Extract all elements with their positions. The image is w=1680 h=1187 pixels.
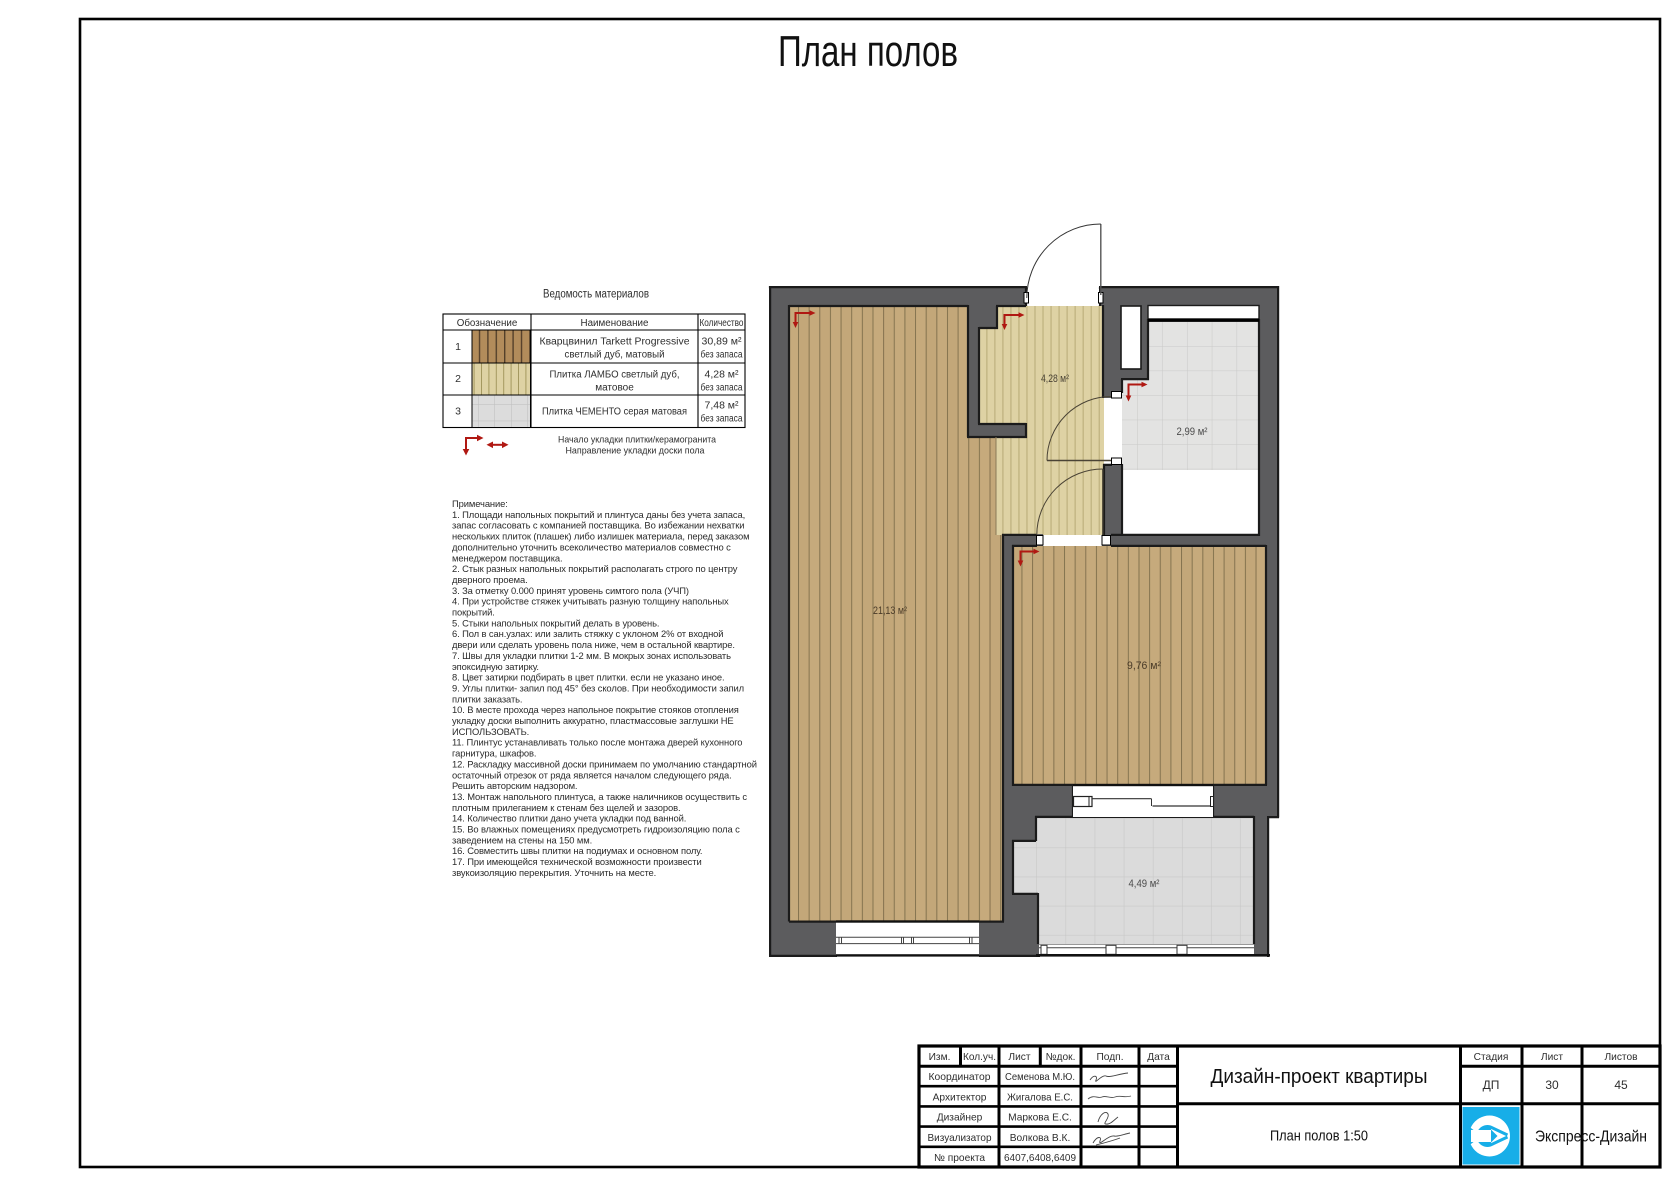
svg-text:4,49 м²: 4,49 м² bbox=[1129, 878, 1160, 890]
svg-text:1. Площади напольных покрытий: 1. Площади напольных покрытий и плинтуса… bbox=[452, 509, 745, 520]
svg-text:15. Во влажных помещениях пред: 15. Во влажных помещениях предусмотреть … bbox=[452, 824, 740, 835]
svg-text:светлый дуб, матовый: светлый дуб, матовый bbox=[565, 349, 665, 361]
svg-text:без запаса: без запаса bbox=[701, 382, 743, 394]
svg-text:2: 2 bbox=[455, 373, 461, 385]
svg-text:45: 45 bbox=[1614, 1078, 1628, 1092]
svg-text:№док.: №док. bbox=[1046, 1052, 1076, 1063]
svg-text:плотным прилеганием к стенам б: плотным прилеганием к стенам без щелей и… bbox=[452, 802, 680, 813]
svg-text:Изм.: Изм. bbox=[929, 1052, 951, 1063]
svg-text:Обозначение: Обозначение bbox=[457, 318, 518, 329]
svg-text:остаточный отрезок от ряда явл: остаточный отрезок от ряда является нача… bbox=[452, 769, 732, 780]
svg-text:Подп.: Подп. bbox=[1096, 1052, 1123, 1063]
svg-text:Координатор: Координатор bbox=[929, 1072, 991, 1083]
svg-text:Кол.уч.: Кол.уч. bbox=[963, 1052, 996, 1063]
svg-text:8. Цвет затирки подбирать в цв: 8. Цвет затирки подбирать в цвет плитки.… bbox=[452, 672, 725, 683]
svg-text:13. Монтаж напольного плинтуса: 13. Монтаж напольного плинтуса, а также … bbox=[452, 791, 747, 802]
svg-text:Семенова М.Ю.: Семенова М.Ю. bbox=[1005, 1072, 1075, 1083]
svg-text:запас согласовать с компанией: запас согласовать с компанией поставщика… bbox=[452, 520, 744, 531]
svg-text:ДП: ДП bbox=[1483, 1078, 1500, 1092]
svg-text:30: 30 bbox=[1545, 1078, 1559, 1092]
svg-text:Листов: Листов bbox=[1604, 1052, 1637, 1063]
svg-text:Волкова В.К.: Волкова В.К. bbox=[1010, 1133, 1071, 1144]
svg-text:16. Совместить швы плитки на п: 16. Совместить швы плитки на подиумах и … bbox=[452, 845, 702, 856]
svg-text:17. При имеющейся технической: 17. При имеющейся технической возможност… bbox=[452, 856, 702, 867]
svg-text:Маркова Е.С.: Маркова Е.С. bbox=[1008, 1113, 1072, 1124]
svg-text:4,28 м²: 4,28 м² bbox=[705, 370, 740, 381]
svg-text:Дизайнер: Дизайнер bbox=[937, 1113, 983, 1124]
svg-text:плитки заказать.: плитки заказать. bbox=[452, 693, 522, 704]
svg-text:Жигалова Е.С.: Жигалова Е.С. bbox=[1007, 1093, 1073, 1104]
svg-text:14. Количество плитки дано уче: 14. Количество плитки дано учета укладки… bbox=[452, 813, 686, 824]
svg-text:гарнитура, шкафов.: гарнитура, шкафов. bbox=[452, 748, 536, 759]
svg-text:№ проекта: № проекта bbox=[934, 1153, 985, 1164]
svg-text:без запаса: без запаса bbox=[701, 349, 743, 361]
svg-text:10. В месте прохода через напо: 10. В месте прохода через напольное покр… bbox=[452, 704, 739, 715]
svg-text:Плитка ЛАМБО светлый дуб,: Плитка ЛАМБО светлый дуб, bbox=[550, 369, 680, 381]
svg-text:9,76 м²: 9,76 м² bbox=[1127, 660, 1161, 672]
svg-text:7,48 м²: 7,48 м² bbox=[705, 401, 740, 412]
svg-text:Плитка ЧЕМЕНТО серая матовая: Плитка ЧЕМЕНТО серая матовая bbox=[542, 407, 687, 418]
svg-text:Дата: Дата bbox=[1147, 1052, 1170, 1063]
svg-text:Дизайн-проект квартиры: Дизайн-проект квартиры bbox=[1211, 1066, 1428, 1088]
svg-text:План полов: План полов bbox=[778, 27, 958, 76]
svg-text:Стадия: Стадия bbox=[1474, 1052, 1509, 1063]
svg-text:9. Углы плитки- запил под 45°: 9. Углы плитки- запил под 45° без сколов… bbox=[452, 682, 744, 693]
svg-text:Начало укладки плитки/керамогр: Начало укладки плитки/керамогранита bbox=[558, 435, 717, 445]
svg-text:звукоизоляцию перекрытия. Уточ: звукоизоляцию перекрытия. Уточнить на ме… bbox=[452, 867, 656, 878]
svg-text:1: 1 bbox=[455, 341, 461, 353]
svg-text:12. Раскладку массивной доски: 12. Раскладку массивной доски принимаем … bbox=[452, 758, 757, 769]
svg-text:Экспресс-Дизайн: Экспресс-Дизайн bbox=[1535, 1129, 1647, 1146]
svg-text:3. За отметку 0.000 принят ур: 3. За отметку 0.000 принят уровень симто… bbox=[452, 585, 689, 596]
svg-text:3: 3 bbox=[455, 406, 461, 418]
svg-text:4. При устройстве стяжек учиты: 4. При устройстве стяжек учитывать разну… bbox=[452, 596, 729, 607]
svg-text:Архитектор: Архитектор bbox=[933, 1093, 987, 1104]
svg-text:нескольких плиток (плашек) либ: нескольких плиток (плашек) либо излишек … bbox=[452, 531, 749, 542]
svg-text:2,99 м²: 2,99 м² bbox=[1177, 426, 1208, 438]
svg-text:Ведомость материалов: Ведомость материалов bbox=[543, 289, 649, 301]
svg-text:4,28 м²: 4,28 м² bbox=[1041, 373, 1069, 385]
svg-text:Решить авторским надзором.: Решить авторским надзором. bbox=[452, 780, 577, 791]
svg-text:Лист: Лист bbox=[1541, 1052, 1563, 1063]
svg-text:Примечание:: Примечание: bbox=[452, 498, 508, 509]
svg-text:заведением на стены на 150 мм.: заведением на стены на 150 мм. bbox=[452, 834, 592, 845]
svg-text:двери или сделать уровень пола: двери или сделать уровень пола ниже, чем… bbox=[452, 639, 735, 650]
svg-text:Кварцвинил Tarkett Progressive: Кварцвинил Tarkett Progressive bbox=[540, 337, 690, 348]
svg-text:6407,6408,6409: 6407,6408,6409 bbox=[1004, 1153, 1076, 1164]
svg-text:Направление укладки доски пола: Направление укладки доски пола bbox=[566, 446, 706, 456]
svg-text:11. Плинтус устанавливать толь: 11. Плинтус устанавливать только после м… bbox=[452, 737, 742, 748]
svg-text:без запаса: без запаса bbox=[701, 413, 743, 425]
svg-text:2. Стык разных напольных покры: 2. Стык разных напольных покрытий распол… bbox=[452, 563, 738, 574]
svg-text:5. Стыки напольных покрытий де: 5. Стыки напольных покрытий делать в уро… bbox=[452, 617, 659, 628]
svg-text:эпоксидную затирку.: эпоксидную затирку. bbox=[452, 661, 539, 672]
svg-text:Лист: Лист bbox=[1008, 1052, 1030, 1063]
svg-text:Количество: Количество bbox=[700, 318, 744, 329]
svg-text:Наименование: Наименование bbox=[581, 318, 649, 329]
svg-text:21,13 м²: 21,13 м² bbox=[873, 605, 907, 617]
svg-text:покрытий.: покрытий. bbox=[452, 607, 495, 618]
svg-text:План полов 1:50: План полов 1:50 bbox=[1270, 1129, 1368, 1145]
svg-text:30,89 м²: 30,89 м² bbox=[702, 337, 743, 348]
svg-text:матовое: матовое bbox=[595, 383, 634, 394]
svg-text:менеджером поставщика.: менеджером поставщика. bbox=[452, 552, 563, 563]
svg-text:ИСПОЛЬЗОВАТЬ.: ИСПОЛЬЗОВАТЬ. bbox=[452, 726, 529, 737]
svg-text:укладку доски выполнить аккура: укладку доски выполнить аккуратно, пласт… bbox=[452, 715, 734, 726]
svg-text:7. Швы для укладки плитки 1-2: 7. Швы для укладки плитки 1-2 мм. В мокр… bbox=[452, 650, 731, 661]
svg-text:дверного проема.: дверного проема. bbox=[452, 574, 528, 585]
svg-text:дополнительно уточнить всеколи: дополнительно уточнить всеколичество мат… bbox=[452, 541, 731, 552]
svg-text:6. Пол в сан.узлах: или залить: 6. Пол в сан.узлах: или залить стяжку с … bbox=[452, 628, 723, 639]
svg-text:Визуализатор: Визуализатор bbox=[928, 1133, 992, 1144]
